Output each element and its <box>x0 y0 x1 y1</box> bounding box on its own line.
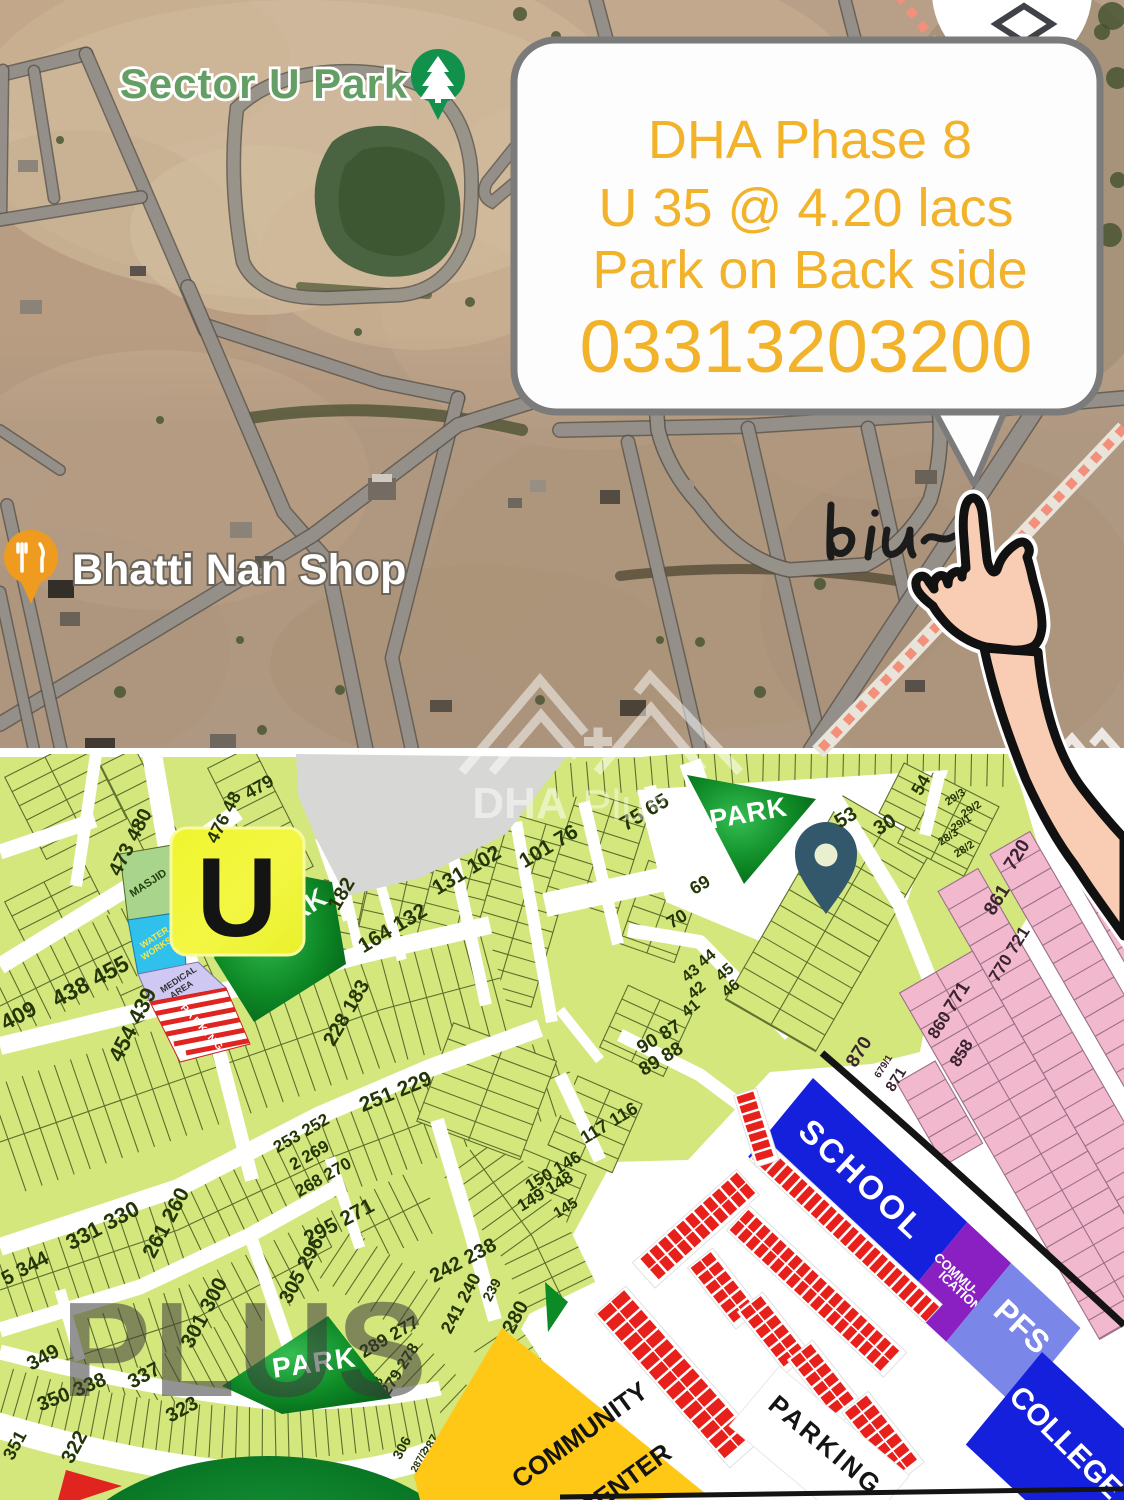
svg-text:Park on Back side: Park on Back side <box>592 240 1027 300</box>
svg-text:DHA Phase 8: DHA Phase 8 <box>648 110 972 170</box>
svg-text:U 35 @ 4.20 lacs: U 35 @ 4.20 lacs <box>598 178 1013 238</box>
svg-text:03313203200: 03313203200 <box>580 305 1033 388</box>
svg-text:U: U <box>197 835 278 960</box>
svg-text:Bhatti Nan Shop: Bhatti Nan Shop <box>72 546 406 594</box>
svg-text:Sector U Park: Sector U Park <box>120 60 408 107</box>
svg-text:PLUS: PLUS <box>61 1274 429 1425</box>
svg-text:Plus: Plus <box>582 781 668 830</box>
svg-text:DHA: DHA <box>472 779 567 828</box>
